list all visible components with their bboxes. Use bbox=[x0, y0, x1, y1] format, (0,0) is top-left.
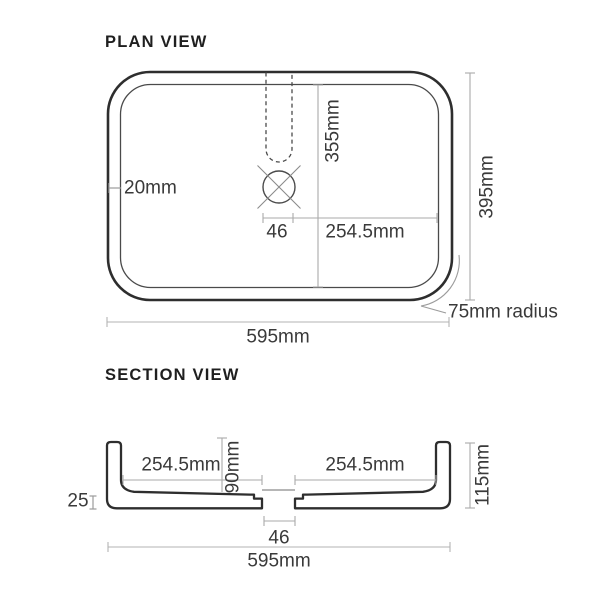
section-dim-left-half-label: 254.5mm bbox=[141, 456, 220, 475]
section-dim-right-half-line bbox=[295, 475, 436, 485]
plan-view-linework bbox=[107, 72, 475, 327]
drawing-linework bbox=[0, 0, 600, 600]
plan-dim-overall-width-label: 595mm bbox=[246, 328, 309, 347]
plan-dim-wall-thickness-line bbox=[109, 183, 121, 193]
plan-dim-inner-length-line bbox=[313, 85, 323, 287]
plan-dim-inner-length-label: 355mm bbox=[324, 99, 343, 162]
section-dim-drain-width-label: 46 bbox=[268, 529, 289, 548]
plan-dim-wall-thickness-label: 20mm bbox=[124, 179, 177, 198]
section-dim-base-thickness-line bbox=[90, 496, 97, 509]
drain-symbol bbox=[258, 166, 301, 209]
plan-dim-drain-width-label: 46 bbox=[266, 223, 287, 242]
plan-view-title: PLAN VIEW bbox=[105, 33, 207, 52]
technical-drawing-basin: PLAN VIEW 20mm 355mm 46 254.5mm 395mm 59… bbox=[0, 0, 600, 600]
section-dim-overall-height-label: 115mm bbox=[474, 444, 493, 506]
section-dim-right-half-label: 254.5mm bbox=[325, 456, 404, 475]
plan-dim-overall-depth-line bbox=[465, 73, 475, 300]
corner-radius-label: 75mm radius bbox=[448, 303, 558, 322]
plan-dim-overall-depth-label: 395mm bbox=[478, 155, 497, 218]
plan-dim-drain-to-wall-label: 254.5mm bbox=[325, 223, 404, 242]
section-dim-bowl-depth-label: 90mm bbox=[224, 441, 243, 494]
section-dim-overall-width-label: 595mm bbox=[247, 552, 310, 571]
tap-hole-hidden-outline bbox=[266, 73, 292, 163]
plan-dim-overall-width-line bbox=[107, 317, 449, 327]
corner-radius-arc bbox=[421, 255, 459, 306]
section-dim-drain-width-line bbox=[264, 516, 295, 526]
section-dim-base-thickness-label: 25 bbox=[67, 492, 88, 511]
corner-radius-leader bbox=[421, 306, 446, 313]
section-view-title: SECTION VIEW bbox=[105, 366, 240, 385]
